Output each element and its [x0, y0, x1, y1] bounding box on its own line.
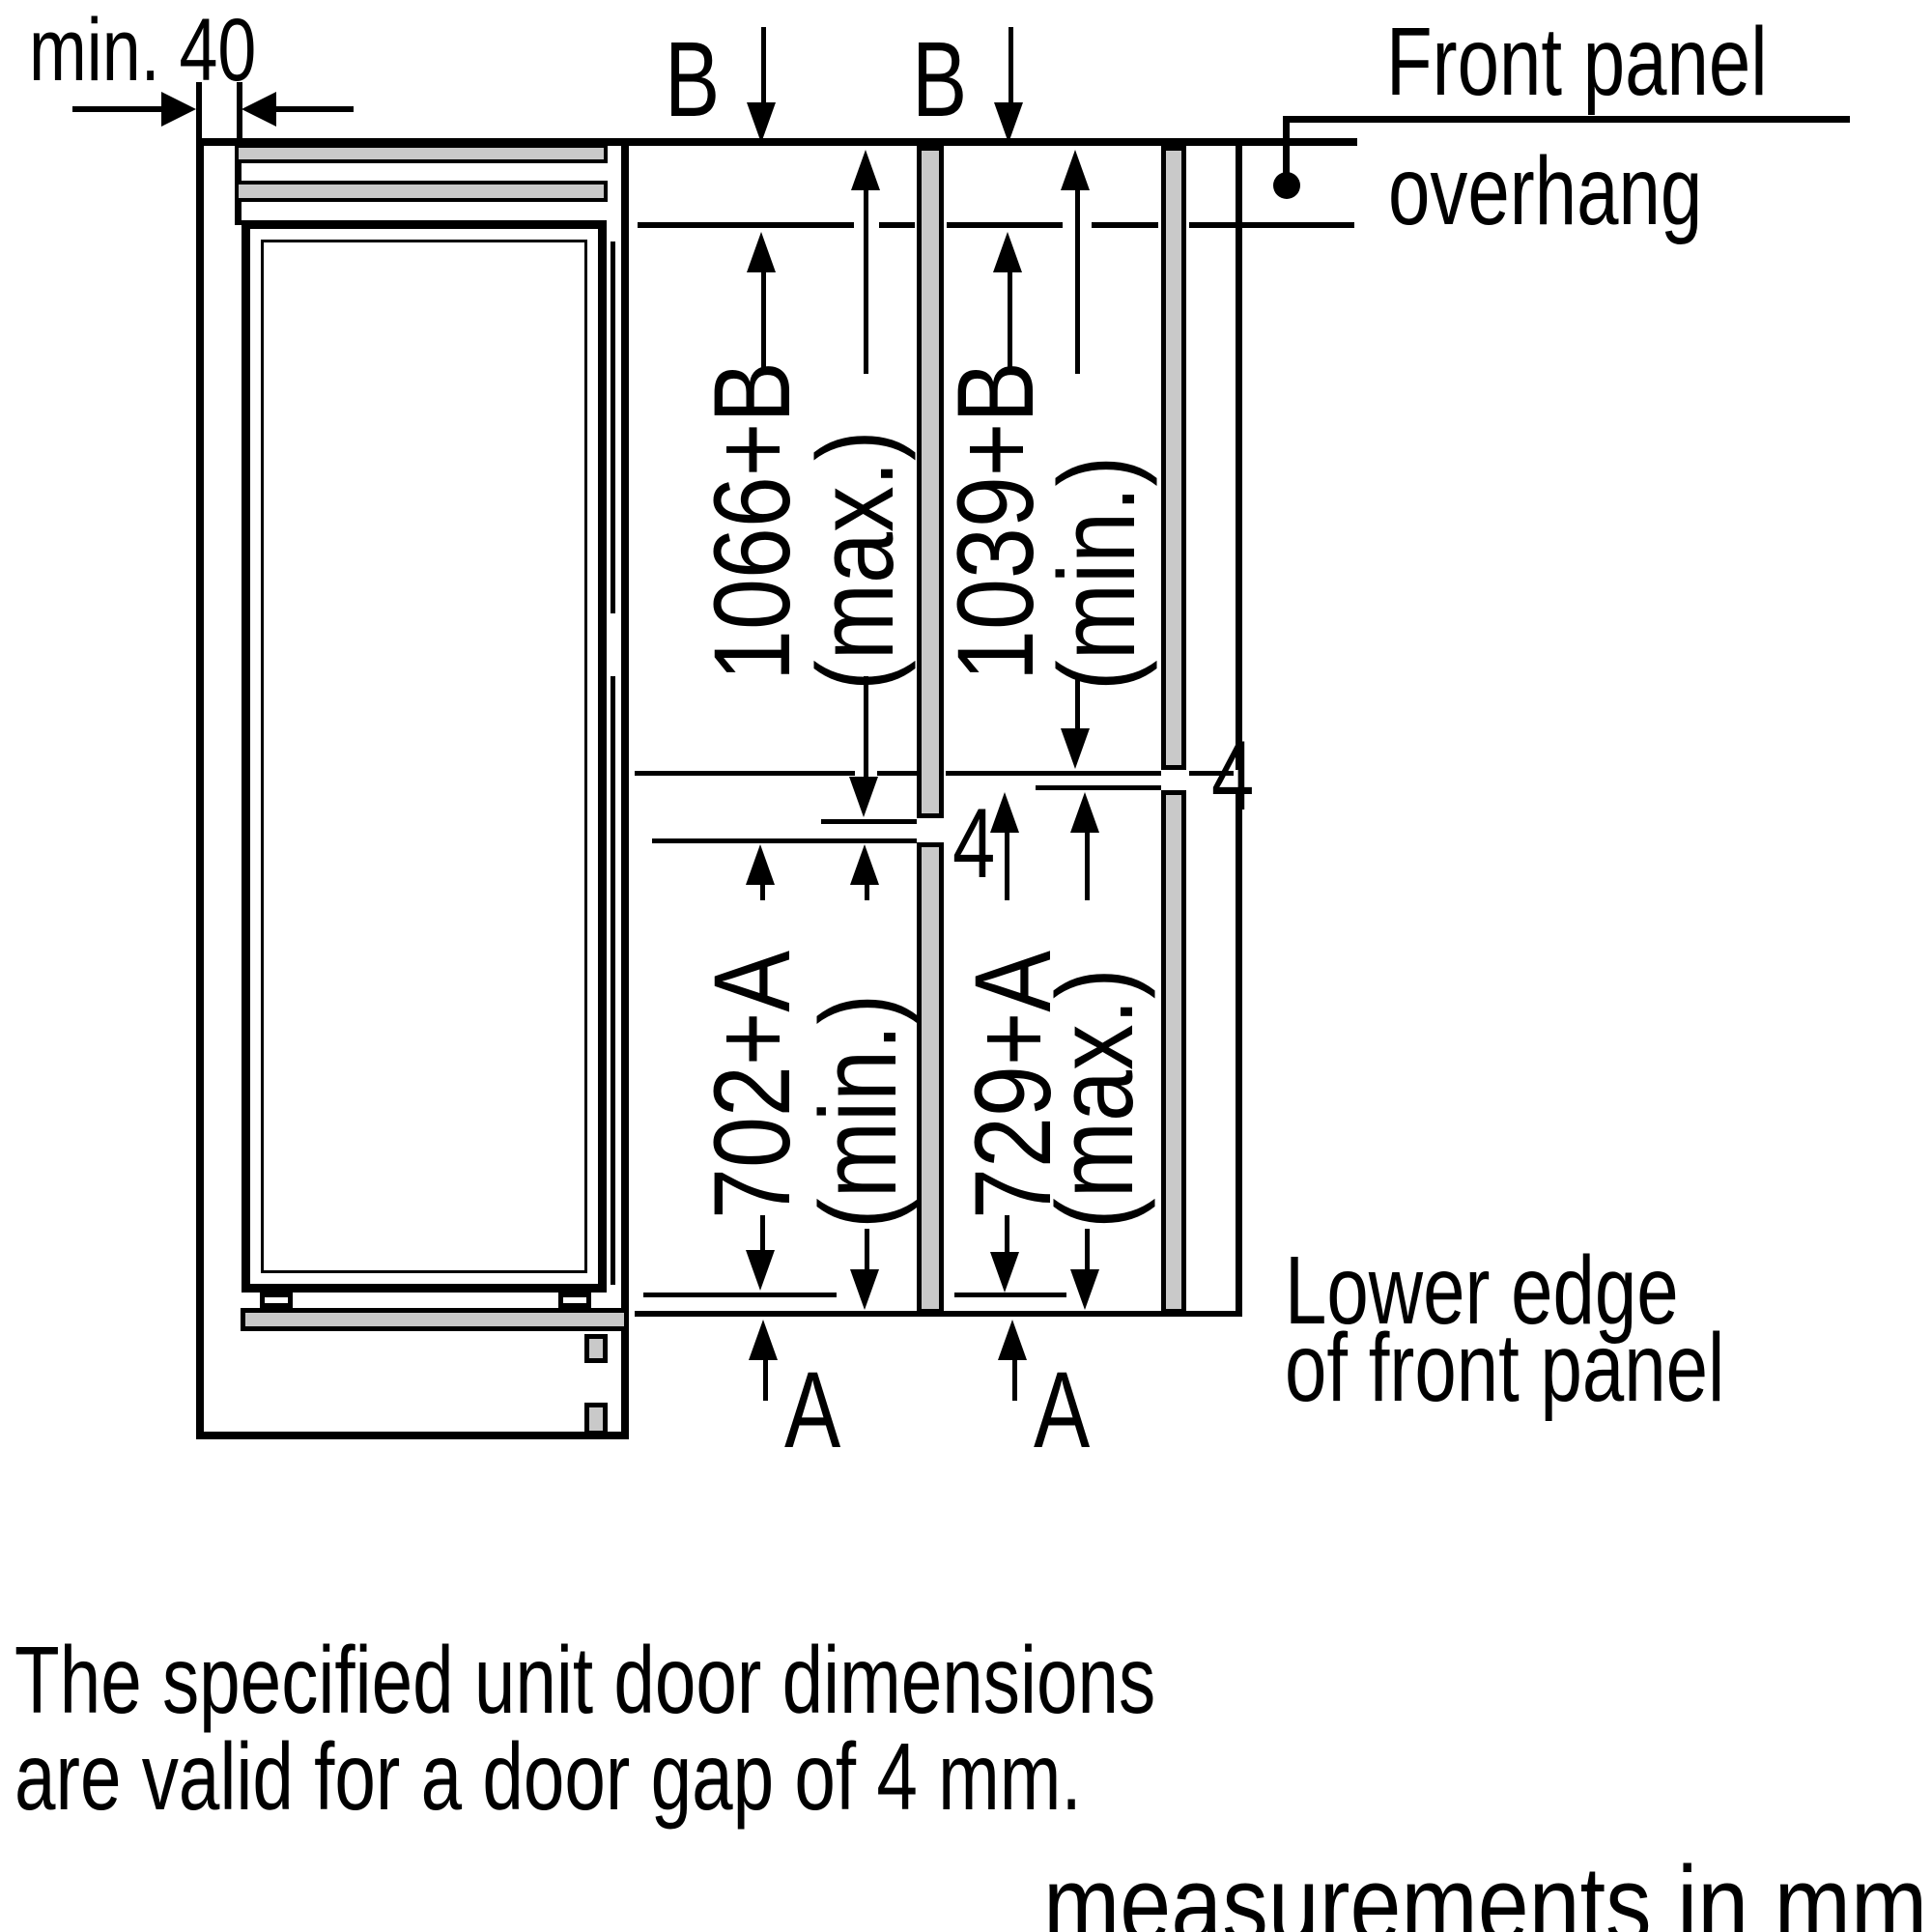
dim-lower-left2-shaft-b — [865, 1229, 869, 1269]
door-gap-line-right-upper — [877, 771, 917, 776]
arrow-down-icon — [990, 1252, 1019, 1293]
min-gap-arrow-shaft-right — [276, 106, 354, 112]
arrow-up-icon — [850, 844, 879, 885]
arrow-down-icon — [1061, 728, 1090, 769]
dim-upper-right-value: 1039+B — [942, 361, 1050, 681]
dim-lower-left2-shaft-a — [865, 885, 869, 900]
dim-lower-right-qualifier: (max.) — [1041, 968, 1150, 1229]
min-gap-label: min. 40 — [29, 6, 256, 95]
arrow-down-icon — [1070, 1269, 1099, 1310]
front-panel-lower-edge-line — [635, 1311, 1242, 1317]
cabinet-bottom-line — [196, 1432, 629, 1439]
arrow-up-icon — [990, 792, 1019, 833]
door-gap-line-right-lower — [1036, 785, 1161, 790]
arrow-up-icon — [1061, 150, 1090, 190]
a-left-shaft — [763, 1360, 768, 1401]
front-panel-caption-line2: overhang — [1388, 143, 1702, 240]
a-label-left: A — [784, 1356, 840, 1464]
b-label-left: B — [665, 27, 720, 133]
cabinet-left-wall — [196, 138, 204, 1439]
door-gap-label-left: 4 — [952, 794, 995, 893]
door-front-edge-upper — [611, 241, 615, 613]
installation-diagram: min. 40 B 1066+B (max.) B — [0, 0, 1932, 1932]
appliance-foot-left — [260, 1293, 293, 1308]
cabinet-right-wall — [621, 146, 629, 1439]
right-side-wall-lower — [1236, 790, 1242, 1314]
door-bottom-line-left — [643, 1293, 837, 1297]
door-bottom-line-right — [954, 1293, 1066, 1297]
a-label-right: A — [1034, 1356, 1090, 1464]
plinth-block-lower — [584, 1403, 608, 1435]
top-panel-strip-lower — [235, 181, 608, 202]
front-panel-leader-line — [1285, 116, 1850, 123]
dim-upper-left-value: 1066+B — [698, 361, 807, 681]
front-panel-caption-line1: Front panel — [1386, 14, 1768, 110]
overhang-line-segment — [638, 222, 854, 228]
lower-edge-caption-line2: of front panel — [1285, 1320, 1724, 1416]
front-panel-leader-dot — [1273, 172, 1300, 199]
dim-upper-left-shaft-b — [864, 676, 868, 777]
dim-upper-left-shaft-a — [864, 190, 868, 374]
arrow-up-icon — [749, 1320, 778, 1360]
arrow-up-icon — [1070, 792, 1099, 833]
note-line1: The specified unit door dimensions — [14, 1633, 1155, 1727]
dim-upper-left-qualifier: (max.) — [802, 430, 910, 691]
overhang-line-segment — [879, 222, 915, 228]
a-right-shaft — [1012, 1360, 1017, 1401]
appliance-foot-right — [558, 1293, 591, 1308]
overhang-line-segment — [1189, 222, 1354, 228]
arrow-up-icon — [746, 844, 775, 885]
arrow-down-icon — [994, 102, 1023, 143]
door-gap-label-right: 4 — [1211, 726, 1254, 825]
arrow-up-icon — [747, 232, 776, 272]
top-panel-strip-upper — [235, 144, 608, 163]
arrow-up-icon — [851, 150, 880, 190]
dim-lower-left-qualifier: (min.) — [805, 994, 913, 1229]
dim-upper-right-shaft-a — [1075, 190, 1080, 374]
arrow-down-icon — [850, 1269, 879, 1310]
b-label-right: B — [912, 27, 967, 133]
dim-lower-right-shaft-b — [1005, 1215, 1009, 1252]
dim-lower-right2-shaft-a — [1085, 833, 1090, 900]
door-gap-line-right-upper — [946, 771, 1161, 776]
min-gap-arrow-shaft-left — [72, 106, 161, 112]
dim-b-left-shaft-bottom — [761, 270, 766, 369]
arrow-down-icon — [849, 777, 878, 817]
plinth-block-upper — [584, 1334, 608, 1363]
dim-lower-left-shaft-a — [760, 885, 765, 900]
arrow-down-icon — [747, 102, 776, 143]
arrow-up-icon — [993, 232, 1022, 272]
overhang-line-segment — [1092, 222, 1158, 228]
front-panel-leader-drop — [1283, 116, 1290, 174]
dim-lower-right-shaft-a — [1005, 833, 1009, 900]
arrow-up-icon — [998, 1320, 1027, 1360]
right-side-wall-upper — [1236, 146, 1242, 770]
appliance-body-inner-line — [261, 240, 587, 1273]
door-panel-lower-left-variant — [917, 842, 944, 1314]
door-gap-line-right-upper — [635, 771, 855, 776]
door-panel-lower-right-variant — [1161, 790, 1186, 1314]
dim-lower-left-value: 702+A — [698, 951, 807, 1219]
door-panel-upper-right-variant — [1161, 146, 1186, 770]
dim-b-right-shaft-bottom — [1008, 270, 1012, 369]
plinth-panel — [241, 1308, 629, 1331]
dim-upper-right-qualifier: (min.) — [1043, 456, 1151, 691]
door-gap-line-left-lower — [652, 838, 917, 843]
door-gap-line-left-upper — [821, 819, 917, 824]
note-line2: are valid for a door gap of 4 mm. — [14, 1729, 1082, 1824]
dim-b-right-shaft-top — [1009, 27, 1013, 102]
dim-lower-right2-shaft-b — [1085, 1229, 1090, 1269]
dim-lower-left-shaft-b — [760, 1215, 765, 1250]
arrow-down-icon — [746, 1250, 775, 1291]
door-front-edge-lower — [611, 676, 615, 1285]
overhang-line-segment — [947, 222, 1063, 228]
units-note: measurements in mm — [1043, 1851, 1927, 1932]
dim-b-left-shaft-top — [761, 27, 766, 102]
